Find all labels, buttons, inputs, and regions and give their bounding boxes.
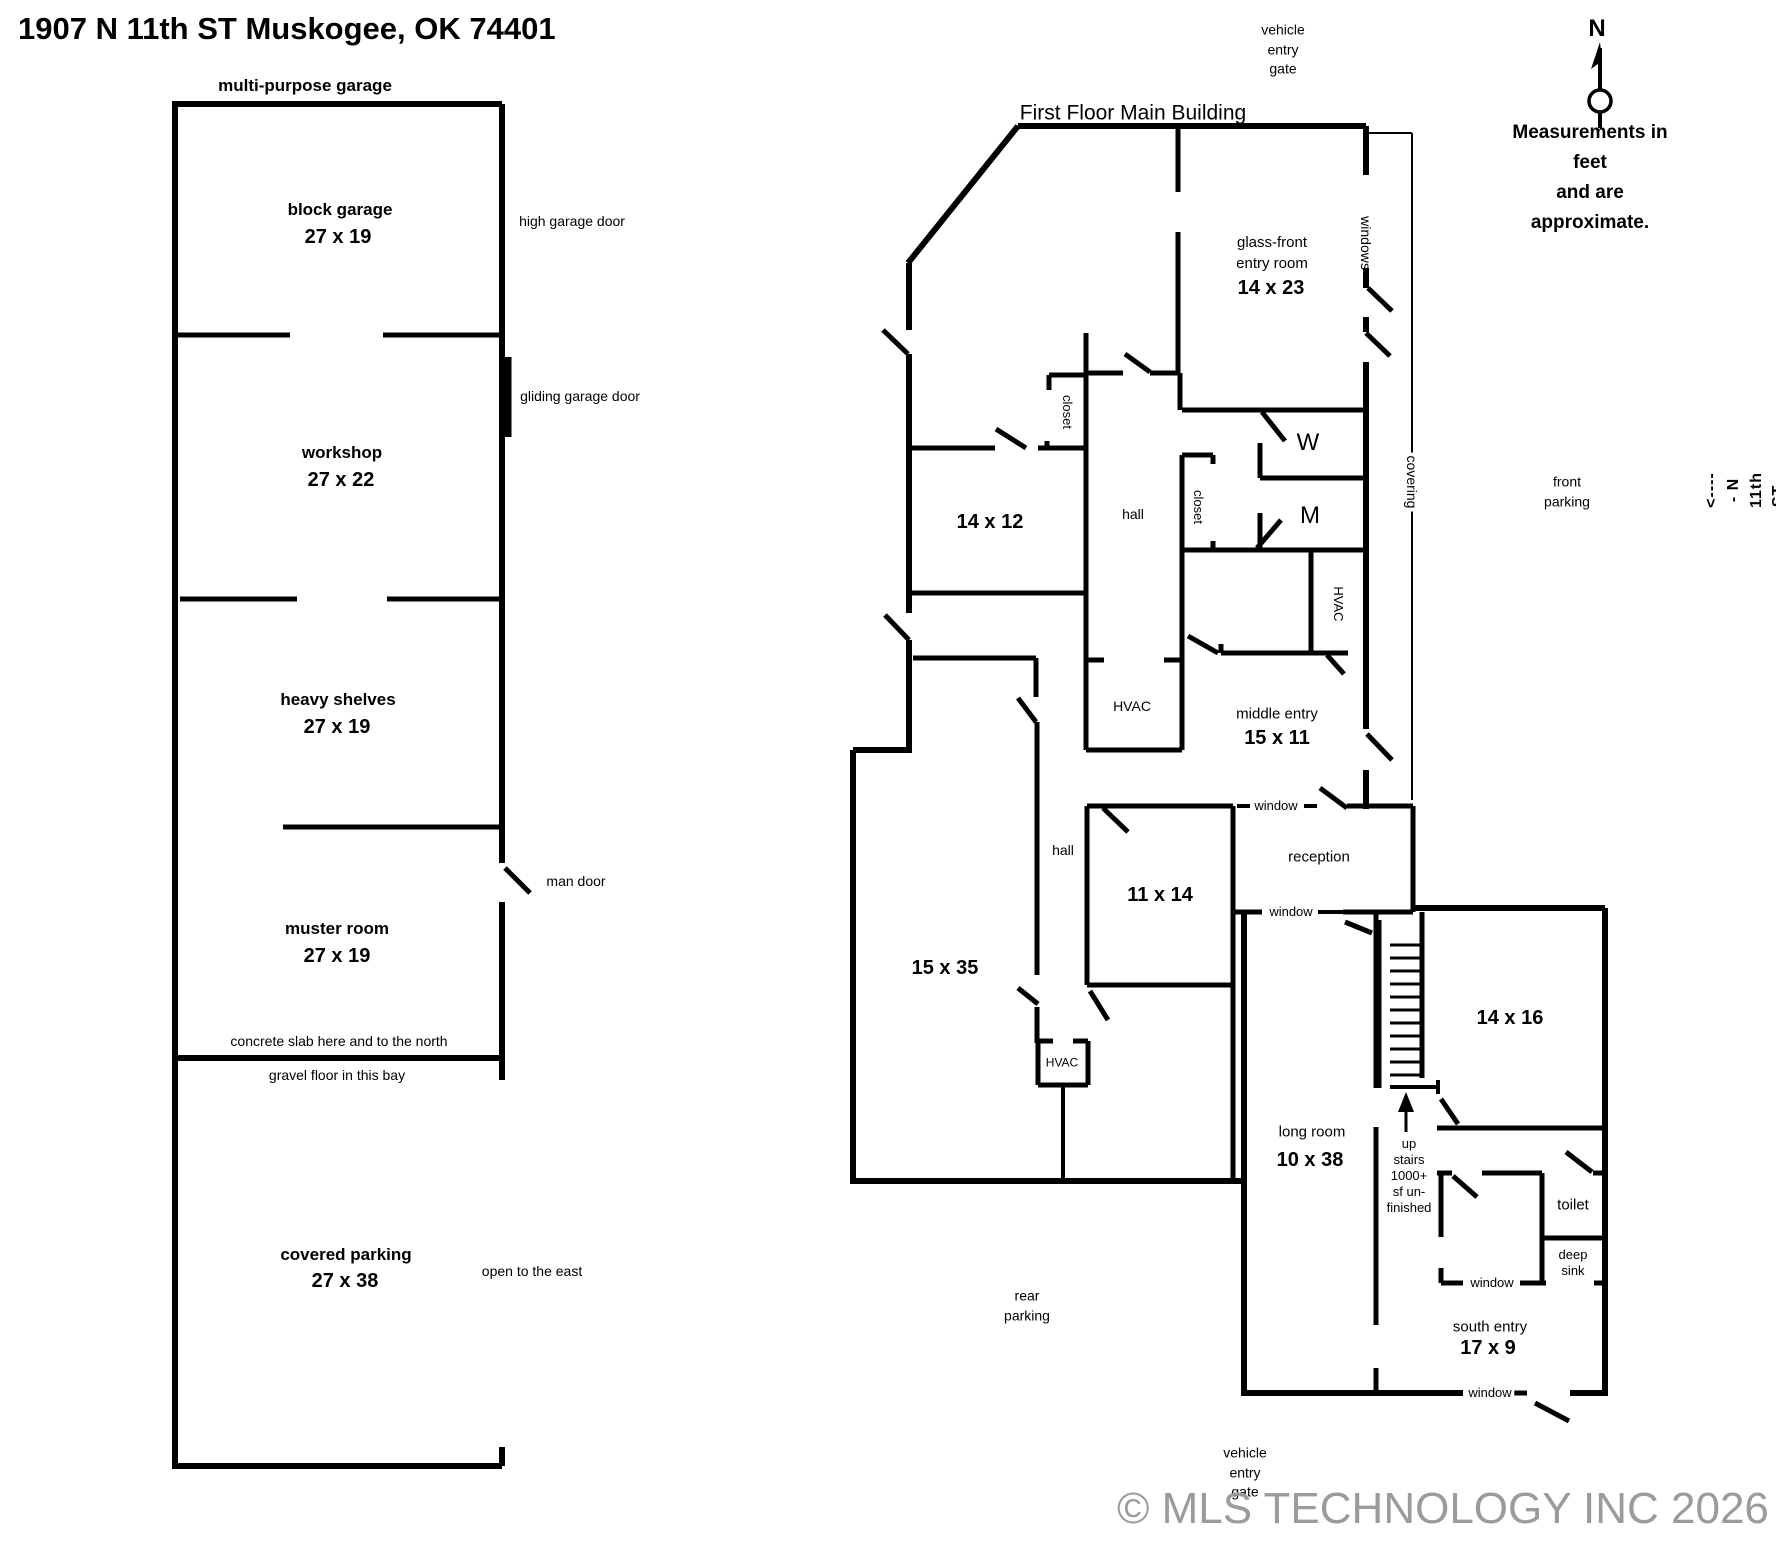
window-label-2: window: [1266, 903, 1315, 921]
glass-front-name: glass-front entry room: [1236, 232, 1308, 274]
room-14x12-dim: 14 x 12: [957, 508, 1024, 536]
address-title: 1907 N 11th ST Muskogee, OK 74401: [18, 7, 556, 50]
long-room-dim: 10 x 38: [1277, 1146, 1344, 1174]
hvac-1-label: HVAC: [1113, 697, 1151, 717]
door-swing: [1090, 991, 1108, 1020]
toilet-label: toilet: [1557, 1195, 1589, 1216]
door-swing: [1453, 1176, 1477, 1197]
glass-front-dim: 14 x 23: [1238, 274, 1305, 302]
hall-lower-label: hall: [1052, 841, 1074, 861]
middle-entry-name: middle entry: [1236, 704, 1318, 725]
block-garage-name: block garage: [288, 198, 393, 222]
door-swing: [1188, 636, 1218, 653]
door-swing: [1367, 734, 1392, 760]
door-swing: [1566, 1152, 1592, 1172]
up-stairs-arrow: [1398, 1092, 1414, 1132]
hvac-2-label: HVAC: [1046, 1055, 1078, 1072]
floor-plan: 1907 N 11th ST Muskogee, OK 74401multi-p…: [0, 0, 1776, 1548]
stairs: [1379, 912, 1438, 1094]
deep-sink-label: deep sink: [1559, 1247, 1588, 1279]
door-swing: [1327, 655, 1344, 674]
south-entry-dim: 17 x 9: [1460, 1334, 1516, 1362]
windows-label: windows: [1355, 216, 1375, 270]
covered-parking-dim: 27 x 38: [312, 1267, 379, 1295]
long-room-name: long room: [1279, 1122, 1346, 1143]
window-label-1: window: [1251, 797, 1300, 815]
main-title: First Floor Main Building: [1020, 98, 1246, 127]
door-swing: [1018, 988, 1038, 1004]
room-14x16-dim: 14 x 16: [1477, 1004, 1544, 1032]
hvac-closet-label: HVAC: [1329, 586, 1347, 621]
workshop-dim: 27 x 22: [308, 466, 375, 494]
door-swing: [1366, 333, 1390, 356]
window-label-3: window: [1467, 1274, 1516, 1292]
reception-label: reception: [1288, 847, 1350, 868]
covered-parking-name: covered parking: [280, 1243, 411, 1267]
mens-room-label: M: [1300, 499, 1320, 533]
heavy-shelves-dim: 27 x 19: [304, 713, 371, 741]
door-swing: [1345, 922, 1372, 933]
door-swing: [1262, 412, 1285, 441]
door-swing: [1125, 354, 1150, 372]
door-swing: [885, 615, 909, 640]
high-garage-door: high garage door: [519, 212, 625, 232]
up-arrow-head: [1398, 1092, 1414, 1112]
measurements-note: Measurements in feet and are approximate…: [1497, 118, 1683, 238]
north-arrow: [1589, 42, 1611, 128]
heavy-shelves-name: heavy shelves: [280, 688, 395, 712]
covering-label: covering: [1401, 453, 1421, 512]
door-swing: [1368, 288, 1392, 311]
gravel-floor-note: gravel floor in this bay: [269, 1066, 405, 1086]
door-swing: [1320, 788, 1347, 808]
street-label: <----- N 11th ST ----->: [1701, 472, 1776, 508]
window-label-4: window: [1465, 1384, 1514, 1402]
room-15x35-dim: 15 x 35: [912, 954, 979, 982]
watermark: © MLS TECHNOLOGY INC 2026: [1117, 1478, 1769, 1540]
door-swing: [996, 429, 1026, 448]
front-parking-label: front parking: [1544, 472, 1590, 511]
room-11x14-dim: 11 x 14: [1127, 881, 1193, 909]
block-garage-dim: 27 x 19: [305, 223, 372, 251]
hall-upper-label: hall: [1122, 505, 1144, 525]
closet-1-label: closet: [1058, 395, 1076, 429]
main-building-walls: [853, 126, 1413, 1184]
concrete-slab-note: concrete slab here and to the north: [230, 1032, 447, 1052]
garage-title: multi-purpose garage: [218, 74, 392, 98]
rear-parking-label: rear parking: [1004, 1286, 1050, 1325]
door-swing: [1535, 1403, 1569, 1421]
workshop-name: workshop: [302, 441, 382, 465]
door-swing: [1018, 698, 1036, 722]
open-east-note: open to the east: [482, 1262, 582, 1282]
door-swing: [883, 330, 908, 354]
man-door-swing: [505, 868, 530, 893]
door-swing: [1103, 808, 1128, 832]
closet-2-label: closet: [1189, 490, 1207, 524]
middle-entry-dim: 15 x 11: [1244, 724, 1310, 752]
upstairs-note: up stairs 1000+ sf un- finished: [1387, 1136, 1432, 1216]
vehicle-gate-top: vehicle entry gate: [1261, 21, 1305, 80]
muster-room-dim: 27 x 19: [304, 942, 371, 970]
door-swing: [1441, 1099, 1458, 1124]
womens-room-label: W: [1297, 426, 1320, 460]
north-label: N: [1588, 12, 1605, 46]
man-door: man door: [546, 872, 605, 892]
muster-room-name: muster room: [285, 917, 389, 941]
gliding-garage-door: gliding garage door: [520, 387, 640, 407]
